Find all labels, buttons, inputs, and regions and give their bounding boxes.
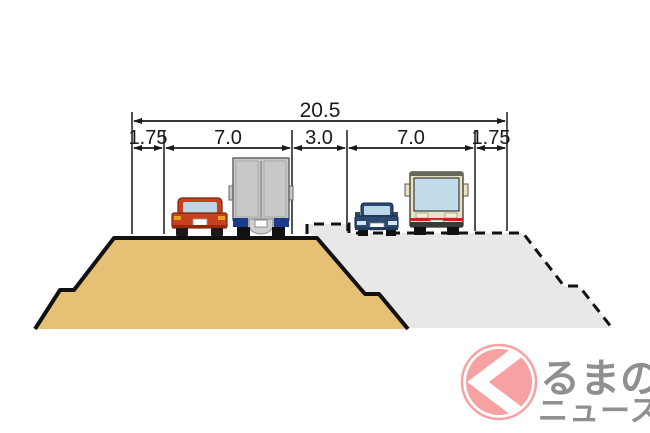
wheel (358, 230, 368, 236)
red-car (172, 198, 227, 236)
dimension-label-total: 20.5 (300, 99, 341, 122)
dimension-total: 20.5 (134, 99, 505, 122)
headlight-left (416, 213, 428, 218)
wheel (414, 227, 426, 235)
dimension-label-median: 3.0 (305, 127, 333, 149)
site-logo: るまの ニュース (462, 345, 650, 428)
wheel (386, 230, 396, 236)
license-plate (255, 220, 267, 227)
mirror-left (355, 212, 360, 216)
headlight-left (357, 221, 366, 225)
truck-bumper-right (274, 218, 289, 227)
headlight-right (445, 213, 457, 218)
dimension-segments: 1.75 7.0 3.0 7.0 1.75 (129, 127, 511, 149)
dimension-label-lane-right: 7.0 (397, 127, 425, 149)
wheel (237, 227, 250, 237)
wheel (272, 227, 285, 237)
diagram-canvas: 20.5 1.75 7.0 3.0 7.0 1.75 (0, 0, 650, 433)
dimension-label-lane-left: 7.0 (214, 127, 242, 149)
bus-windshield (414, 178, 459, 211)
wheel (211, 228, 223, 236)
headlight-right (388, 221, 397, 225)
wheel (176, 228, 188, 236)
bus (405, 172, 468, 235)
taillight-right (218, 216, 225, 220)
blue-car (355, 203, 398, 236)
taillight-left (174, 216, 181, 220)
wheel (447, 227, 459, 235)
mirror-right (393, 212, 398, 216)
dimension-label-shoulder-left: 1.75 (129, 127, 168, 149)
dimension-label-shoulder-right: 1.75 (472, 127, 511, 149)
truck-bumper-left (233, 218, 248, 227)
truck (229, 158, 293, 237)
logo-text-line2: ニュース (538, 395, 650, 428)
road-cross-section-figure: 20.5 1.75 7.0 3.0 7.0 1.75 (0, 0, 650, 433)
